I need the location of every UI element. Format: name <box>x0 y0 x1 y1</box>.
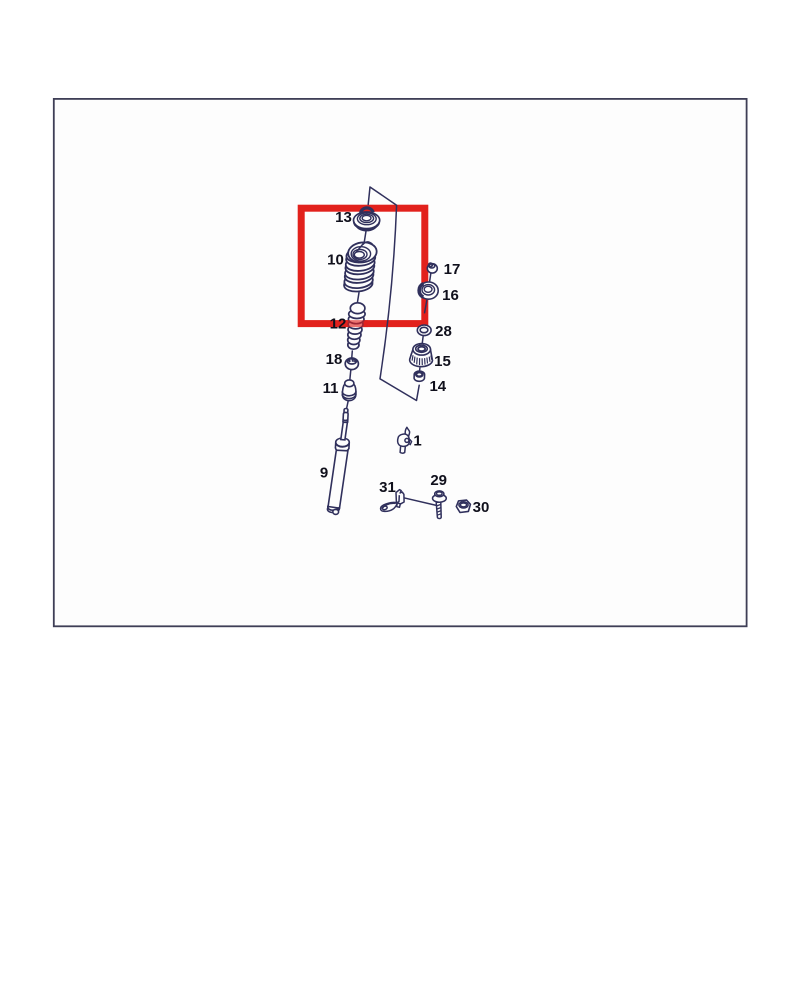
svg-text:13: 13 <box>335 209 352 226</box>
svg-text:16: 16 <box>442 287 459 304</box>
svg-text:14: 14 <box>429 378 446 395</box>
svg-text:12: 12 <box>330 316 347 333</box>
svg-text:11: 11 <box>323 380 339 397</box>
svg-text:17: 17 <box>444 261 461 278</box>
svg-text:29: 29 <box>430 472 447 489</box>
svg-text:28: 28 <box>435 323 452 340</box>
svg-text:15: 15 <box>434 353 451 370</box>
svg-text:1: 1 <box>413 433 421 450</box>
svg-text:18: 18 <box>326 351 343 368</box>
svg-text:9: 9 <box>320 465 328 482</box>
svg-text:30: 30 <box>473 499 490 516</box>
svg-text:31: 31 <box>379 479 396 496</box>
svg-text:10: 10 <box>327 252 344 269</box>
